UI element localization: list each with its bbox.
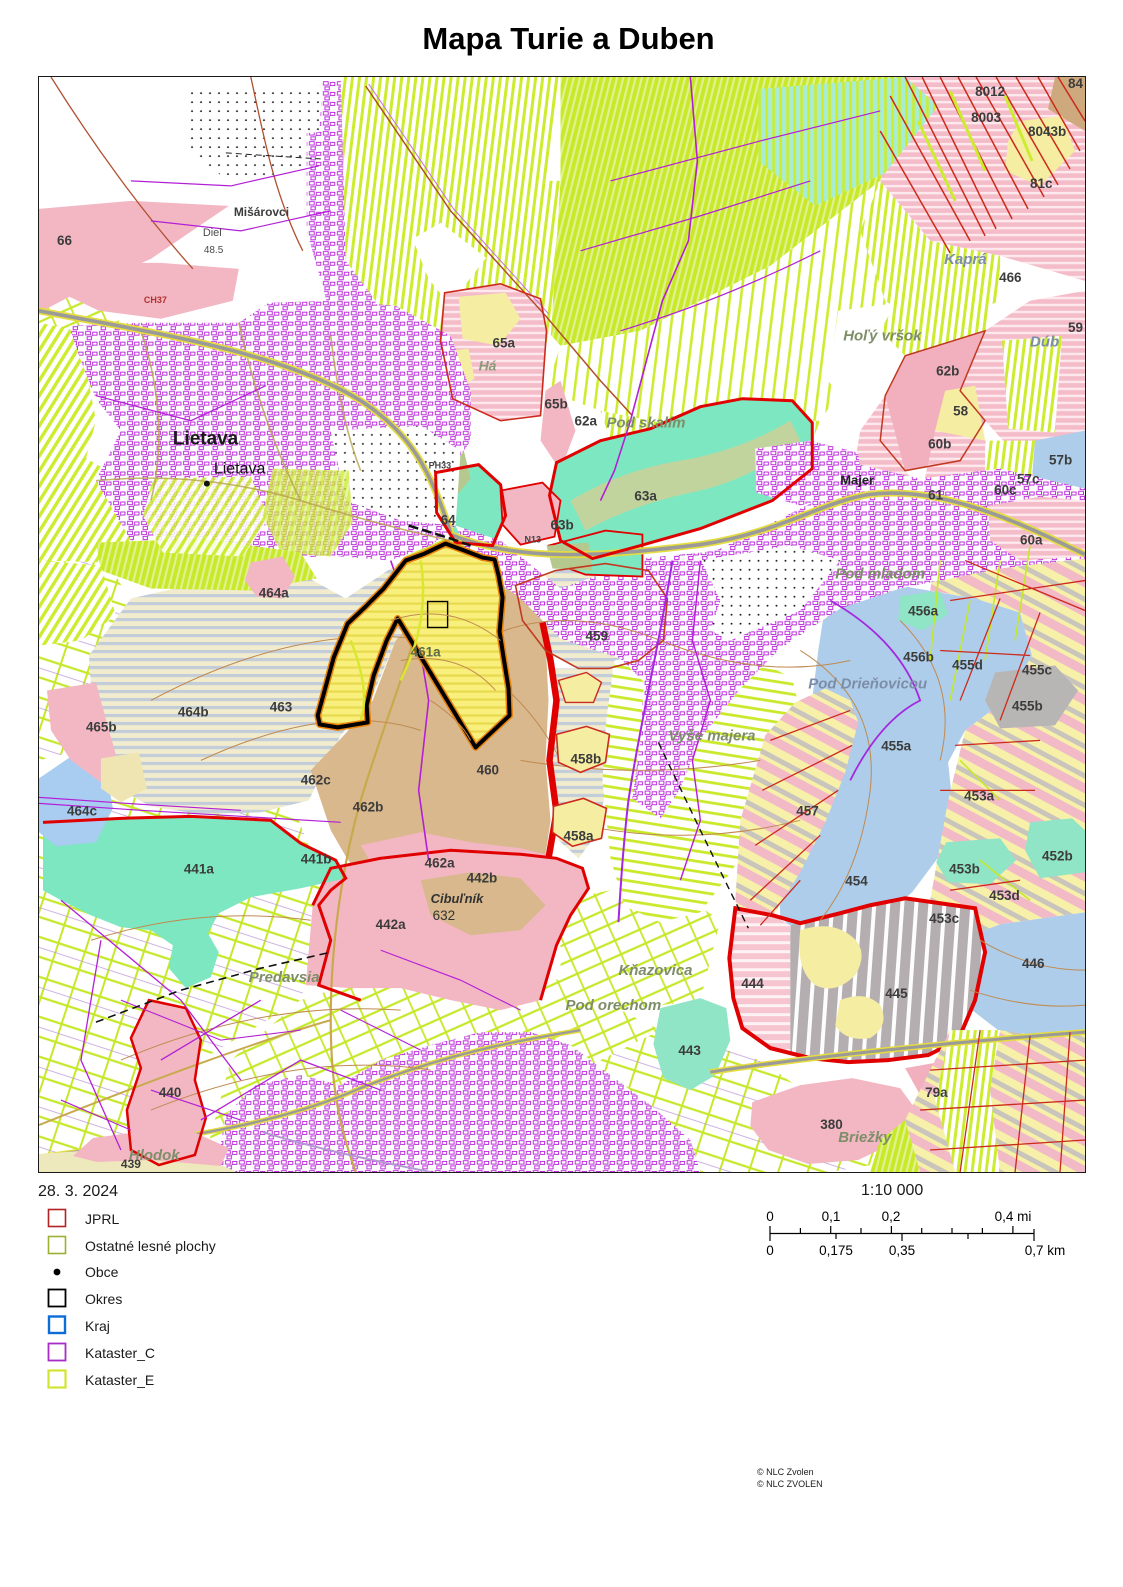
svg-text:0,1: 0,1 — [822, 1209, 841, 1224]
svg-text:Diel: Diel — [203, 227, 222, 239]
svg-text:N13: N13 — [525, 535, 541, 545]
svg-text:Okres: Okres — [85, 1291, 122, 1307]
svg-text:440: 440 — [159, 1085, 181, 1100]
svg-text:Pod orechom: Pod orechom — [565, 997, 661, 1014]
svg-text:62b: 62b — [936, 364, 959, 379]
svg-text:441a: 441a — [184, 861, 214, 876]
svg-text:457: 457 — [796, 803, 818, 818]
svg-text:65b: 65b — [545, 397, 568, 412]
svg-text:58: 58 — [953, 404, 968, 419]
svg-text:Kataster_C: Kataster_C — [85, 1345, 155, 1361]
svg-text:Há: Há — [479, 358, 497, 374]
svg-text:Pod mladom: Pod mladom — [835, 566, 925, 583]
svg-text:453c: 453c — [929, 911, 959, 926]
svg-text:632: 632 — [433, 908, 455, 923]
svg-text:455c: 455c — [1022, 662, 1052, 677]
svg-text:461a: 461a — [411, 644, 441, 659]
svg-text:Lietava: Lietava — [214, 461, 266, 478]
svg-text:Kraj: Kraj — [85, 1318, 110, 1334]
svg-text:PH33: PH33 — [429, 461, 451, 471]
svg-text:455b: 455b — [1012, 698, 1043, 713]
svg-text:444: 444 — [741, 976, 764, 991]
svg-text:8043b: 8043b — [1028, 124, 1066, 139]
svg-text:442b: 442b — [467, 870, 498, 885]
svg-text:Obce: Obce — [85, 1264, 119, 1280]
svg-text:Ostatné lesné plochy: Ostatné lesné plochy — [85, 1238, 216, 1254]
svg-text:Dúb: Dúb — [1030, 334, 1059, 351]
svg-text:63b: 63b — [551, 518, 574, 533]
svg-text:Kataster_E: Kataster_E — [85, 1372, 154, 1388]
svg-text:Predavsia: Predavsia — [249, 969, 320, 986]
svg-text:57b: 57b — [1049, 453, 1072, 468]
svg-text:Majer: Majer — [840, 473, 874, 488]
svg-text:0,7 km: 0,7 km — [1025, 1243, 1066, 1258]
svg-text:455d: 455d — [952, 657, 983, 672]
svg-text:459: 459 — [585, 628, 607, 643]
svg-text:Mišárovci: Mišárovci — [234, 205, 289, 219]
svg-text:Kňazovica: Kňazovica — [618, 962, 692, 979]
svg-text:65a: 65a — [493, 336, 516, 351]
svg-text:465b: 465b — [86, 719, 117, 734]
svg-text:66: 66 — [57, 233, 72, 248]
svg-text:0: 0 — [766, 1209, 774, 1224]
svg-text:464b: 464b — [178, 704, 209, 719]
svg-text:460: 460 — [477, 762, 499, 777]
svg-text:464c: 464c — [67, 803, 97, 818]
svg-text:81c: 81c — [1030, 176, 1053, 191]
svg-text:0,4 mi: 0,4 mi — [995, 1209, 1032, 1224]
svg-text:462a: 462a — [425, 855, 455, 870]
svg-text:466: 466 — [999, 270, 1021, 285]
svg-text:462b: 462b — [353, 799, 384, 814]
svg-text:60b: 60b — [928, 437, 951, 452]
svg-text:60a: 60a — [1020, 533, 1043, 548]
svg-text:464a: 464a — [259, 586, 289, 601]
svg-text:59: 59 — [1068, 320, 1083, 335]
svg-text:Cibuľník: Cibuľník — [431, 891, 484, 906]
svg-text:0,35: 0,35 — [889, 1243, 915, 1258]
svg-text:CH37: CH37 — [144, 295, 167, 305]
svg-text:458a: 458a — [563, 828, 593, 843]
svg-text:64: 64 — [441, 513, 456, 528]
svg-text:463: 463 — [270, 699, 292, 714]
svg-text:60c: 60c — [994, 483, 1017, 498]
svg-text:Vyše majera: Vyše majera — [668, 727, 755, 744]
svg-text:453d: 453d — [989, 888, 1020, 903]
svg-text:0,2: 0,2 — [882, 1209, 901, 1224]
svg-text:0: 0 — [766, 1243, 774, 1258]
svg-text:63a: 63a — [634, 489, 657, 504]
svg-text:452b: 452b — [1042, 848, 1073, 863]
svg-text:Lietava: Lietava — [173, 429, 239, 450]
svg-text:Pod Drieňovicou: Pod Drieňovicou — [808, 675, 927, 692]
svg-text:Kaprá: Kaprá — [944, 251, 986, 268]
svg-text:61: 61 — [928, 488, 943, 503]
svg-text:445: 445 — [885, 986, 908, 1001]
svg-text:8012: 8012 — [975, 84, 1005, 99]
svg-text:Pod skalím: Pod skalím — [606, 415, 685, 432]
svg-text:Hoľý vršok: Hoľý vršok — [843, 328, 922, 345]
svg-text:456b: 456b — [903, 649, 934, 664]
svg-text:8003: 8003 — [971, 110, 1001, 125]
svg-text:454: 454 — [845, 873, 868, 888]
svg-text:458b: 458b — [570, 751, 601, 766]
svg-text:48.5: 48.5 — [204, 245, 224, 256]
svg-text:79a: 79a — [925, 1085, 948, 1100]
svg-text:84: 84 — [1068, 77, 1083, 91]
svg-text:Hlodok: Hlodok — [129, 1147, 180, 1164]
svg-text:453b: 453b — [949, 861, 980, 876]
svg-text:442a: 442a — [376, 917, 406, 932]
svg-text:456a: 456a — [908, 604, 938, 619]
svg-text:Briežky: Briežky — [838, 1129, 892, 1146]
svg-text:JPRL: JPRL — [85, 1211, 119, 1227]
svg-text:462c: 462c — [301, 772, 331, 787]
svg-text:455a: 455a — [881, 738, 911, 753]
svg-text:446: 446 — [1022, 956, 1044, 971]
svg-text:443: 443 — [678, 1043, 700, 1058]
svg-text:57c: 57c — [1017, 472, 1040, 487]
svg-text:62a: 62a — [574, 414, 597, 429]
svg-text:441b: 441b — [301, 851, 332, 866]
svg-text:0,175: 0,175 — [819, 1243, 853, 1258]
svg-text:453a: 453a — [964, 788, 994, 803]
